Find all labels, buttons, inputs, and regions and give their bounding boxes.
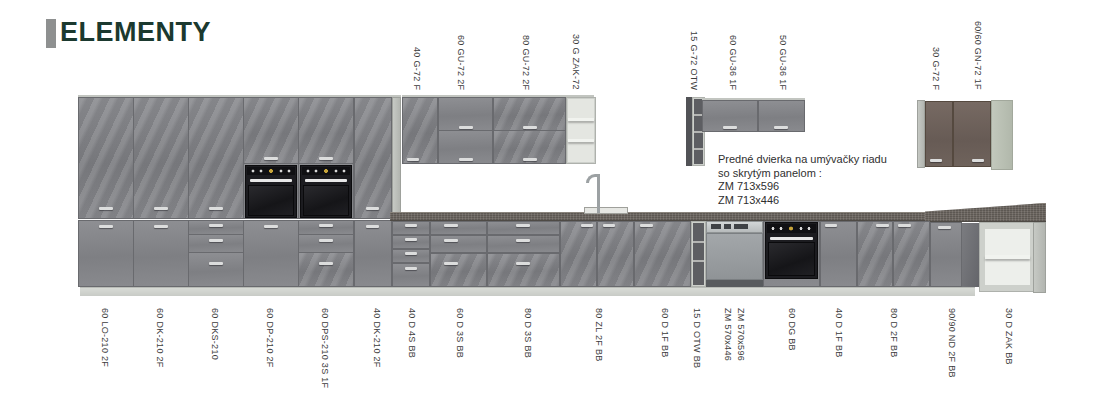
- base-cabinet-60-d-1f-door: [634, 221, 691, 287]
- shelf: [568, 139, 594, 142]
- door-handle: [603, 224, 615, 227]
- door-handle: [640, 224, 653, 227]
- shelf: [693, 241, 704, 243]
- base-cabinet-80-d-2f-door: [857, 221, 893, 287]
- drawer-handle: [516, 224, 530, 227]
- shelf: [694, 148, 703, 150]
- door-handle: [774, 126, 788, 129]
- door-handle: [264, 157, 278, 160]
- door-handle: [366, 207, 379, 210]
- drawer-handle: [516, 262, 530, 265]
- kitchen-render: [0, 0, 1100, 408]
- drawer: [487, 235, 560, 253]
- tall-cabinet-60-dp-210-lower-door: [243, 220, 299, 287]
- dishwasher-slot: [724, 224, 731, 229]
- tall-cabinet-60-dk-210-upper-door: [133, 97, 189, 219]
- oven-glass: [303, 185, 349, 216]
- sink-cabinet-door: [560, 221, 597, 287]
- door-handle: [523, 158, 537, 161]
- oven-handle-bar: [770, 237, 813, 240]
- drawer-handle: [405, 224, 417, 227]
- oven-handle-bar: [250, 179, 292, 182]
- corner-cabinet-90-90-nd-door: [930, 222, 962, 287]
- corner-cabinet-angled-face: [962, 223, 979, 287]
- tall-cabinet-60-dps-210-top-door: [298, 97, 354, 164]
- drawer-handle: [209, 239, 223, 242]
- oven-glass: [248, 185, 294, 216]
- door-handle: [209, 207, 223, 210]
- drawer: [188, 234, 244, 253]
- door-handle: [898, 224, 911, 227]
- tall-cabinet-60-lo-210-lower-door: [78, 220, 134, 287]
- drawer-handle: [444, 262, 458, 265]
- drawer-handle: [209, 262, 223, 265]
- drawer-handle: [319, 239, 333, 242]
- corner-wall-side-panel: [917, 100, 925, 168]
- door-handle: [319, 157, 333, 160]
- door-handle: [264, 225, 278, 228]
- dishwasher-front-panel: [706, 233, 763, 280]
- door-handle: [825, 224, 837, 227]
- drawer: [188, 220, 244, 235]
- wall-open-shelf-interior: [568, 99, 594, 162]
- drawer-handle: [516, 239, 530, 242]
- dishwasher-base: [706, 280, 763, 287]
- door-handle: [523, 126, 537, 129]
- tall-cabinet-60-dk-210-lower-door: [133, 220, 189, 287]
- countertop-corner: [925, 203, 1046, 222]
- drawer-handle: [319, 262, 333, 265]
- faucet-pipe: [597, 176, 600, 213]
- drawer-handle: [405, 238, 417, 241]
- oven-glass: [768, 242, 815, 276]
- tall-cabinet-60-dks-210-upper-door: [188, 97, 244, 219]
- corner-wall-return-panel: [991, 100, 1013, 170]
- oven-control-panel: [302, 167, 350, 175]
- end-open-shelf-side-panel: [1033, 222, 1046, 293]
- door-handle: [154, 207, 168, 210]
- sink: [584, 207, 628, 214]
- dishwasher-slot: [711, 224, 721, 229]
- door-handle: [581, 224, 593, 227]
- drawer-handle: [319, 224, 333, 227]
- oven-handle-bar: [305, 179, 347, 182]
- drawer-handle: [444, 224, 458, 227]
- door-handle: [972, 159, 984, 162]
- tall-cabinet-60-lo-210-upper-door: [78, 97, 134, 219]
- drawer-handle: [405, 267, 417, 270]
- shelf: [568, 118, 594, 121]
- drawer-handle: [405, 252, 417, 255]
- tall-cabinet-40-dk-210-lower-door: [354, 220, 392, 287]
- dishwasher-slot: [734, 224, 748, 229]
- drawer: [430, 221, 487, 235]
- door-handle: [366, 225, 379, 228]
- shelf: [693, 260, 704, 262]
- door-handle: [99, 225, 113, 228]
- drawer: [430, 253, 487, 287]
- door-handle: [407, 158, 419, 161]
- drawer: [298, 220, 354, 235]
- door-handle: [876, 224, 889, 227]
- tall-cabinet-60-dp-210-top-door: [243, 97, 299, 164]
- drawer: [298, 234, 354, 253]
- plinth: [80, 287, 975, 296]
- oven-control-panel: [767, 224, 816, 233]
- oven-control-panel: [247, 167, 295, 175]
- drawer: [430, 235, 487, 253]
- door-handle: [723, 126, 737, 129]
- countertop: [390, 212, 930, 221]
- tall-cabinet-40-dk-210-upper-door: [354, 97, 392, 219]
- door-handle: [930, 159, 942, 162]
- drawer: [188, 252, 244, 287]
- wall-cabinet-60-60-gn-72-door: [953, 101, 991, 167]
- base-cabinet-40-d-1f-door: [820, 221, 857, 287]
- door-handle: [938, 226, 951, 229]
- drawer: [298, 252, 354, 287]
- base-open-shelf-interior: [693, 223, 704, 285]
- drawer: [487, 253, 560, 287]
- wall-cabinet-30-g-72-door: [925, 101, 953, 167]
- wall-cabinet-40-g-72-door: [402, 97, 438, 164]
- door-handle: [99, 207, 113, 210]
- drawer-handle: [209, 224, 223, 227]
- door-handle: [459, 126, 473, 129]
- sink-cabinet-door: [597, 221, 634, 287]
- shelf: [985, 255, 1030, 259]
- door-handle: [154, 225, 168, 228]
- door-handle: [459, 158, 473, 161]
- drawer-handle: [444, 239, 458, 242]
- base-cabinet-80-d-2f-door: [893, 221, 930, 287]
